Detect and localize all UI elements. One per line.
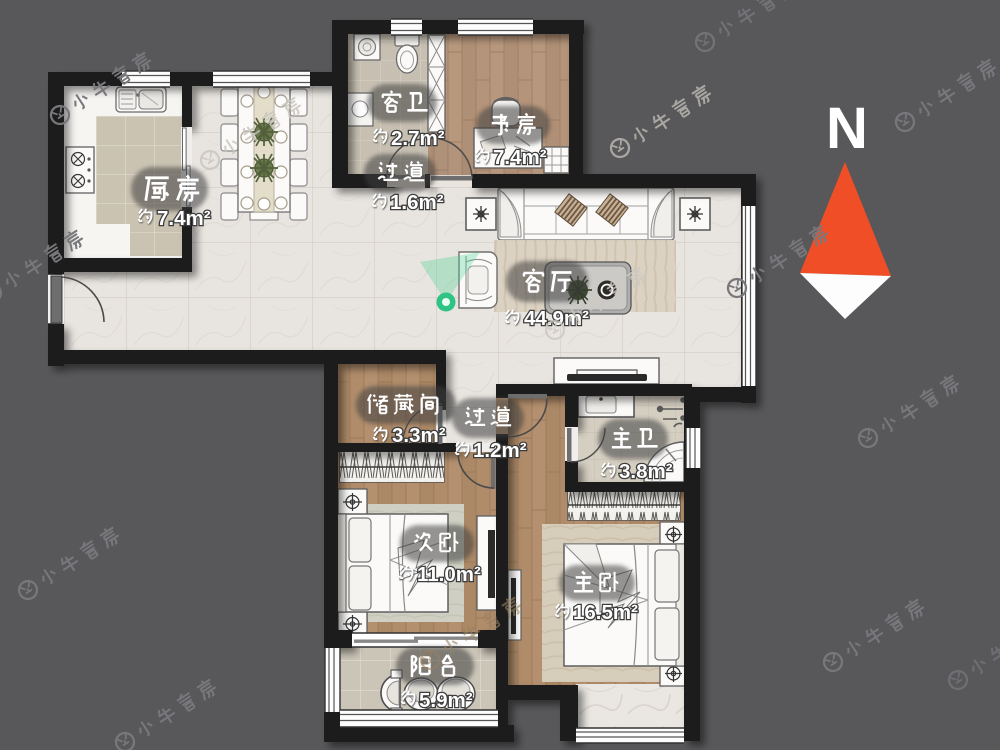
svg-text:1.6m²: 1.6m² [390,191,444,214]
svg-text:5.9m²: 5.9m² [419,689,473,712]
svg-text:7.4m²: 7.4m² [493,146,547,169]
svg-text:3.3m²: 3.3m² [392,424,446,447]
svg-text:11.0m²: 11.0m² [417,563,481,586]
svg-text:44.9m²: 44.9m² [524,307,589,330]
svg-text:2.7m²: 2.7m² [391,127,445,150]
svg-text:1.2m²: 1.2m² [473,439,527,462]
svg-text:3.8m²: 3.8m² [619,460,673,483]
svg-text:N: N [826,96,868,161]
svg-text:16.5m²: 16.5m² [573,601,638,624]
svg-text:7.4m²: 7.4m² [157,207,211,230]
